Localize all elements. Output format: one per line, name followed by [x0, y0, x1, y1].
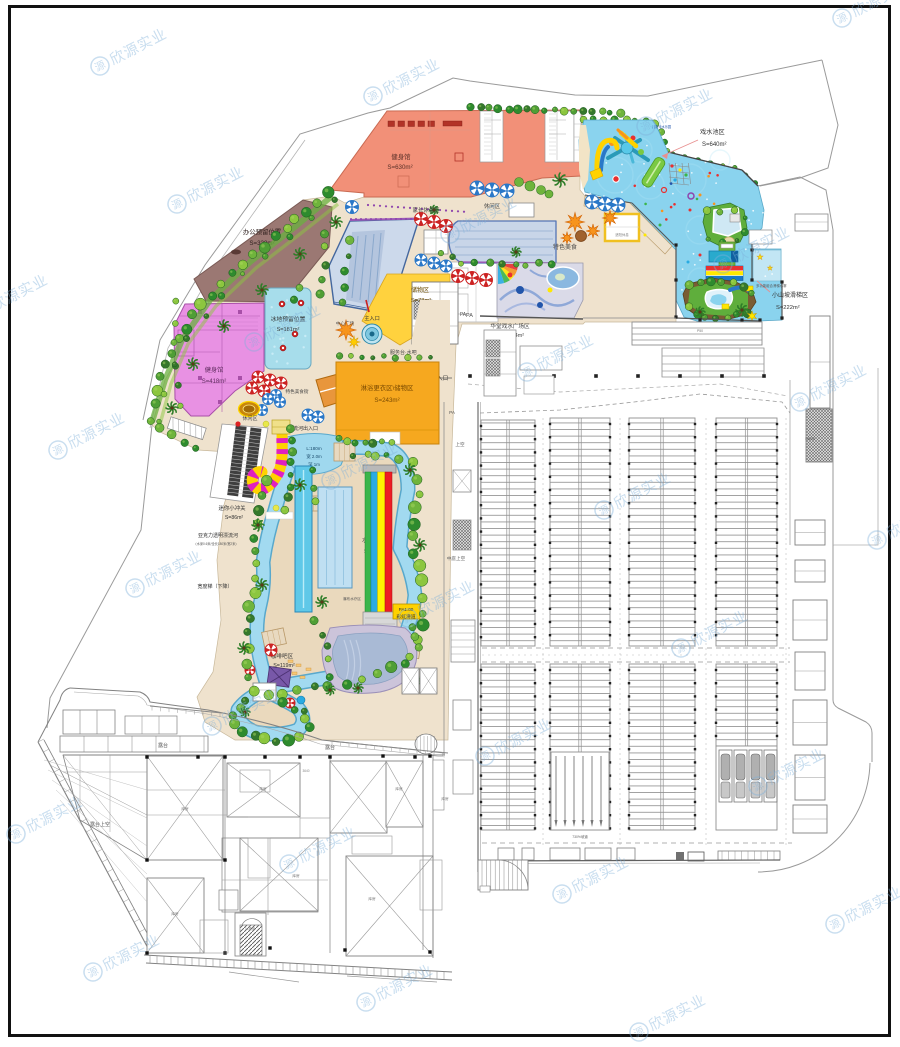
- svg-text:S=630m²: S=630m²: [387, 164, 412, 171]
- svg-text:S=119m²: S=119m²: [273, 663, 295, 669]
- svg-text:健身馆: 健身馆: [205, 366, 224, 374]
- svg-text:730%坡道: 730%坡道: [572, 834, 588, 839]
- svg-text:库房: 库房: [441, 796, 449, 801]
- svg-text:瀑布水疗区: 瀑布水疗区: [343, 596, 361, 601]
- svg-text:DN/08: DN/08: [805, 437, 815, 441]
- svg-text:多功能组合滑梯水寨: 多功能组合滑梯水寨: [756, 283, 787, 288]
- svg-text:中心广场: 中心广场: [336, 320, 355, 327]
- svg-text:S=418m²: S=418m²: [202, 379, 227, 385]
- svg-text:库房: 库房: [292, 873, 300, 878]
- svg-text:休闲区: 休闲区: [242, 415, 257, 422]
- svg-text:库房: 库房: [259, 786, 267, 791]
- svg-text:PA: PA: [460, 312, 467, 318]
- svg-text:家长休息区: 家长休息区: [413, 206, 441, 214]
- svg-text:亚克力透明漂流河: 亚克力透明漂流河: [198, 532, 238, 539]
- svg-text:储物区: 储物区: [411, 286, 429, 294]
- svg-text:S=86m²: S=86m²: [225, 515, 244, 521]
- svg-text:库房: 库房: [171, 911, 179, 916]
- svg-text:迷你小冲关: 迷你小冲关: [219, 504, 247, 512]
- svg-text:小山坡滑梯区: 小山坡滑梯区: [772, 291, 808, 299]
- svg-text:PA: PA: [449, 410, 456, 415]
- svg-text:PA: PA: [466, 313, 473, 319]
- svg-text:库房: 库房: [395, 786, 403, 791]
- svg-text:S=243m²: S=243m²: [374, 397, 399, 404]
- svg-text:库房: 库房: [181, 806, 189, 811]
- svg-text:3640: 3640: [302, 769, 309, 773]
- svg-text:S=222m²: S=222m²: [776, 305, 800, 311]
- svg-text:中庭上空: 中庭上空: [447, 555, 466, 562]
- svg-text:华堂戏水广场区: 华堂戏水广场区: [490, 322, 530, 330]
- svg-text:露台: 露台: [325, 744, 335, 751]
- svg-text:露台: 露台: [158, 742, 168, 749]
- svg-text:遮阳休息: 遮阳休息: [615, 232, 629, 237]
- svg-text:（水深0.6米/全长180米/宽2米）: （水深0.6米/全长180米/宽2米）: [193, 541, 238, 546]
- svg-text:露台上空: 露台上空: [90, 821, 110, 828]
- svg-text:戏水池区: 戏水池区: [700, 128, 725, 136]
- svg-text:上空: 上空: [455, 441, 465, 447]
- svg-text:特色美食街: 特色美食街: [286, 388, 309, 395]
- svg-text:S=640m²: S=640m²: [702, 142, 727, 148]
- svg-text:主入口: 主入口: [364, 314, 380, 322]
- svg-text:宽度梯（下降）: 宽度梯（下降）: [197, 583, 232, 590]
- svg-text:淋浴更衣区\储物区: 淋浴更衣区\储物区: [361, 383, 415, 392]
- svg-text:健身馆: 健身馆: [391, 152, 410, 161]
- svg-text:特色美食: 特色美食: [553, 243, 577, 251]
- svg-text:L:180m: L:180m: [306, 446, 321, 451]
- svg-text:P50: P50: [697, 329, 703, 333]
- svg-text:宽 2.0m: 宽 2.0m: [306, 453, 322, 460]
- svg-text:库房: 库房: [368, 896, 376, 901]
- svg-text:1#楼梯: 1#楼梯: [245, 926, 256, 931]
